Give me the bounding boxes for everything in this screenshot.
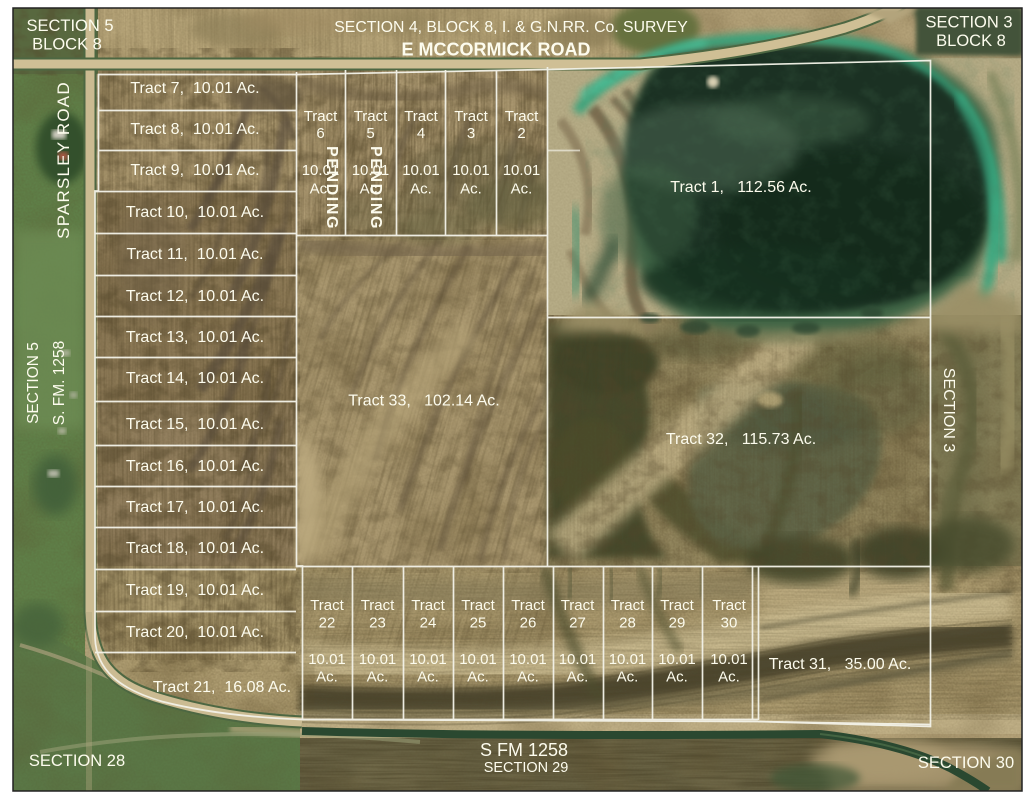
- svg-text:Tract: Tract: [354, 108, 388, 125]
- svg-text:6: 6: [316, 125, 324, 142]
- svg-text:Tract 31, 35.00 Ac.: Tract 31, 35.00 Ac.: [769, 656, 912, 673]
- svg-text:Tract: Tract: [660, 597, 694, 614]
- svg-text:Tract 19, 10.01 Ac.: Tract 19, 10.01 Ac.: [126, 582, 264, 599]
- svg-text:SECTION 5: SECTION 5: [25, 342, 42, 424]
- svg-text:PENDING: PENDING: [367, 146, 384, 230]
- svg-text:Ac.: Ac.: [567, 669, 589, 686]
- svg-text:SECTION 3: SECTION 3: [925, 14, 1012, 32]
- svg-text:Tract 8, 10.01 Ac.: Tract 8, 10.01 Ac.: [130, 121, 259, 138]
- svg-text:PENDING: PENDING: [323, 146, 340, 230]
- svg-text:2: 2: [517, 125, 525, 142]
- svg-text:SPARSLEY ROAD: SPARSLEY ROAD: [54, 81, 73, 239]
- svg-text:Tract 1, 112.56 Ac.: Tract 1, 112.56 Ac.: [670, 179, 811, 196]
- svg-text:10.01: 10.01: [710, 651, 748, 668]
- svg-text:26: 26: [520, 615, 537, 632]
- svg-text:Tract 11, 10.01 Ac.: Tract 11, 10.01 Ac.: [127, 246, 264, 263]
- svg-text:Ac.: Ac.: [316, 669, 338, 686]
- svg-text:Tract 17, 10.01 Ac.: Tract 17, 10.01 Ac.: [126, 499, 264, 516]
- svg-text:Tract: Tract: [454, 108, 488, 125]
- svg-text:Tract 14, 10.01 Ac.: Tract 14, 10.01 Ac.: [126, 370, 264, 387]
- svg-text:Ac.: Ac.: [617, 669, 639, 686]
- svg-text:Tract 33, 102.14 Ac.: Tract 33, 102.14 Ac.: [348, 393, 500, 410]
- svg-text:Tract 21, 16.08 Ac.: Tract 21, 16.08 Ac.: [153, 679, 291, 696]
- svg-text:Ac.: Ac.: [367, 669, 389, 686]
- svg-text:S. FM. 1258: S. FM. 1258: [51, 341, 68, 425]
- svg-text:30: 30: [721, 615, 738, 632]
- svg-text:Tract 13, 10.01 Ac.: Tract 13, 10.01 Ac.: [126, 329, 264, 346]
- svg-text:Tract: Tract: [461, 597, 495, 614]
- svg-text:SECTION 29: SECTION 29: [484, 760, 569, 776]
- svg-text:28: 28: [619, 615, 636, 632]
- svg-text:Ac.: Ac.: [666, 669, 688, 686]
- svg-text:10.01: 10.01: [509, 651, 547, 668]
- svg-text:10.01: 10.01: [359, 651, 397, 668]
- svg-text:10.01: 10.01: [459, 651, 497, 668]
- svg-text:Tract: Tract: [411, 597, 445, 614]
- svg-text:Tract 15, 10.01 Ac.: Tract 15, 10.01 Ac.: [126, 416, 264, 433]
- svg-text:10.01: 10.01: [658, 651, 696, 668]
- svg-text:10.01: 10.01: [503, 162, 541, 179]
- svg-text:29: 29: [669, 615, 686, 632]
- svg-text:Ac.: Ac.: [517, 669, 539, 686]
- svg-text:4: 4: [417, 125, 425, 142]
- svg-text:Tract 7, 10.01 Ac.: Tract 7, 10.01 Ac.: [130, 80, 259, 97]
- svg-text:Tract: Tract: [310, 597, 344, 614]
- svg-text:SECTION 28: SECTION 28: [29, 752, 125, 770]
- svg-text:10.01: 10.01: [559, 651, 597, 668]
- svg-text:27: 27: [569, 615, 586, 632]
- svg-text:BLOCK 8: BLOCK 8: [936, 32, 1006, 50]
- svg-text:5: 5: [366, 125, 374, 142]
- svg-text:Tract: Tract: [404, 108, 438, 125]
- svg-text:10.01: 10.01: [609, 651, 647, 668]
- svg-text:S FM 1258: S FM 1258: [480, 740, 568, 760]
- svg-text:E MCCORMICK ROAD: E MCCORMICK ROAD: [402, 40, 591, 60]
- svg-text:Tract 16, 10.01 Ac.: Tract 16, 10.01 Ac.: [126, 458, 264, 475]
- svg-text:Tract: Tract: [304, 108, 338, 125]
- svg-text:Tract: Tract: [505, 108, 539, 125]
- svg-text:Tract 32, 115.73 Ac.: Tract 32, 115.73 Ac.: [666, 431, 816, 448]
- svg-text:Tract: Tract: [561, 597, 595, 614]
- svg-text:10.01: 10.01: [402, 162, 440, 179]
- svg-text:BLOCK 8: BLOCK 8: [32, 36, 102, 54]
- svg-text:Ac.: Ac.: [460, 181, 482, 198]
- svg-text:Tract: Tract: [611, 597, 645, 614]
- svg-text:3: 3: [467, 125, 475, 142]
- svg-text:24: 24: [420, 615, 437, 632]
- svg-text:Ac.: Ac.: [511, 181, 533, 198]
- svg-text:Tract 18, 10.01 Ac.: Tract 18, 10.01 Ac.: [126, 540, 264, 557]
- svg-text:23: 23: [369, 615, 386, 632]
- svg-text:Tract 12, 10.01 Ac.: Tract 12, 10.01 Ac.: [126, 288, 264, 305]
- svg-text:Tract 9, 10.01 Ac.: Tract 9, 10.01 Ac.: [130, 162, 259, 179]
- svg-text:Tract: Tract: [712, 597, 746, 614]
- svg-text:SECTION 3: SECTION 3: [940, 368, 957, 453]
- svg-text:Ac.: Ac.: [467, 669, 489, 686]
- svg-text:SECTION 30: SECTION 30: [918, 754, 1014, 772]
- svg-text:Ac.: Ac.: [417, 669, 439, 686]
- svg-text:Tract: Tract: [511, 597, 545, 614]
- svg-text:SECTION 4, BLOCK 8, I. & G.N.R: SECTION 4, BLOCK 8, I. & G.N.RR. Co. SUR…: [334, 19, 688, 36]
- svg-text:Ac.: Ac.: [718, 669, 740, 686]
- svg-text:SECTION 5: SECTION 5: [26, 17, 113, 35]
- svg-text:Tract 20, 10.01 Ac.: Tract 20, 10.01 Ac.: [126, 624, 264, 641]
- svg-text:Tract: Tract: [361, 597, 395, 614]
- svg-text:10.01: 10.01: [308, 651, 346, 668]
- svg-text:Tract 10, 10.01 Ac.: Tract 10, 10.01 Ac.: [126, 204, 264, 221]
- svg-text:25: 25: [470, 615, 487, 632]
- svg-text:10.01: 10.01: [452, 162, 490, 179]
- svg-text:22: 22: [319, 615, 336, 632]
- svg-text:10.01: 10.01: [409, 651, 447, 668]
- svg-text:Ac.: Ac.: [410, 181, 432, 198]
